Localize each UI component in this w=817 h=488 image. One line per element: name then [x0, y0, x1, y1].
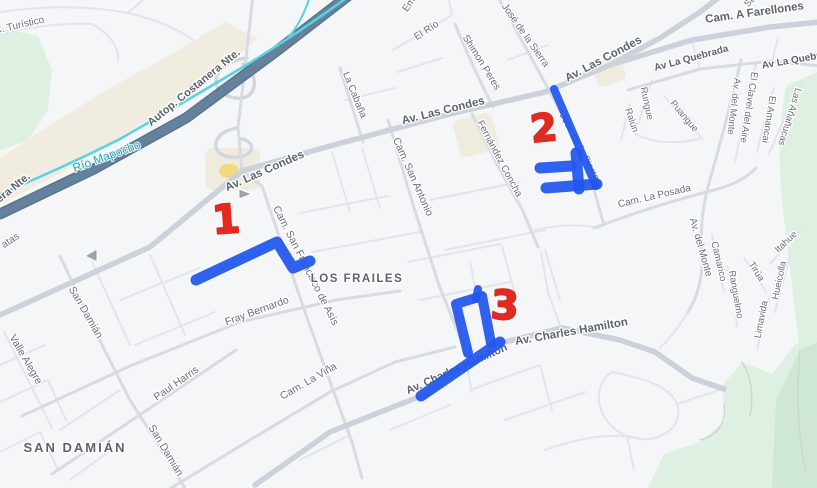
one-way-arrow [239, 189, 252, 199]
street-label-limavida: Limavida [753, 299, 771, 339]
map-screenshot: C. Turístico Autop. Costanera Nte. Autop… [0, 0, 817, 488]
blue-route-annotation-2-vertical [576, 153, 579, 189]
street-label-el-amancai: El Amancai [759, 95, 777, 144]
street-label-el-rio: El Río [412, 19, 441, 43]
red-marker-2: 2 [528, 105, 559, 152]
street-label-paul-harris: Paul Harris [152, 364, 201, 404]
blue-route-annotation-2-bar-upper [540, 166, 571, 168]
street-label-fragment-ema: Ema [401, 0, 422, 14]
area-label-san-damian: SAN DAMIÁN [23, 440, 126, 455]
area-label-los-frailes: LOS FRAILES [311, 273, 404, 285]
street-label-camarico: Camarico [709, 240, 729, 282]
street-label-tirua: Tirúa [746, 260, 767, 284]
street-label-av-del-monte-1: Av. del Monte [725, 77, 743, 135]
park-area-bottom-right-dark [772, 342, 817, 488]
street-label-jose-de-la-sierra-1: José de la Sierra [499, 2, 551, 70]
terrain-areas [0, 22, 817, 488]
street-label-san-damian-2: San Damián [146, 423, 186, 479]
street-label-fernandez-concha: Fernández Concha [474, 119, 524, 200]
red-marker-3: 3 [490, 282, 520, 329]
street-label-av-charles-hamilton-2: Av. Charles Hamilton [514, 316, 629, 348]
map-canvas[interactable]: C. Turístico Autop. Costanera Nte. Autop… [0, 0, 817, 488]
street-label-ranguelmo: Ranguelmo [726, 270, 745, 320]
blue-route-annotation-3-road [421, 342, 500, 396]
street-label-av-la-quebrada-2: Av La Quebrada [761, 47, 817, 71]
street-label-fray-bernardo: Fray Bernardo [223, 294, 290, 328]
street-label-hueicolla: Hueicolla [770, 260, 789, 301]
blue-route-annotation-2-bar-lower [546, 184, 597, 188]
red-number-markers: 1 2 3 [211, 105, 559, 330]
one-way-arrow [85, 249, 97, 262]
blue-route-annotation-3-nub [476, 289, 478, 299]
street-label-puangue: Puangue [667, 98, 700, 134]
street-label-fragment-atas: atas [0, 231, 22, 251]
red-marker-1: 1 [211, 196, 242, 244]
street-label-san-damian-1: San Damián [66, 284, 105, 340]
blue-route-annotation-3-loop [456, 296, 491, 353]
